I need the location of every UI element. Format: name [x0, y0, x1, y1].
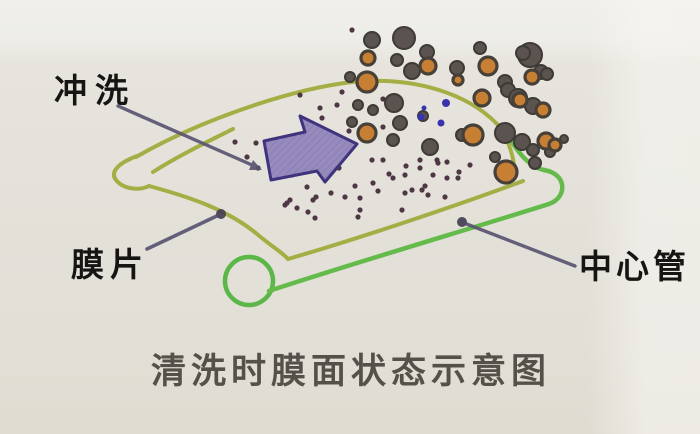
membrane-dirt-dot — [352, 183, 357, 188]
label-flush: 冲洗 — [54, 76, 136, 109]
dirt-blob-orange — [453, 75, 463, 85]
membrane-dirt-dot — [305, 209, 310, 214]
membrane-dirt-dot — [467, 162, 472, 167]
tube-bottom-line — [269, 204, 549, 291]
membrane-dirt-dot — [370, 180, 375, 185]
dirt-blob-dark — [385, 94, 403, 112]
membrane-dirt-dot — [403, 163, 408, 168]
membrane-dirt-dot — [319, 115, 324, 120]
dirt-blob-orange — [361, 51, 375, 65]
blue-dot — [442, 99, 450, 107]
membrane-dirt-dot — [334, 102, 339, 107]
membrane-dirt-dot — [430, 172, 435, 177]
membrane-curl-edge — [114, 156, 149, 189]
dirt-blob-dark — [529, 157, 541, 169]
dirt-blob-dark — [393, 27, 415, 49]
membrane-dirt-dot — [369, 157, 374, 162]
membrane-lower-left-edge — [149, 186, 288, 259]
dirt-blob-dark — [490, 152, 500, 162]
membrane-dirt-dot — [409, 187, 414, 192]
dirt-blob-orange — [495, 161, 517, 183]
membrane-dirt-dot — [317, 105, 322, 110]
membrane-dirt-dot — [380, 124, 385, 129]
membrane-dirt-dot — [375, 188, 380, 193]
dirt-blob-orange — [358, 124, 376, 142]
membrane-dirt-dot — [380, 157, 385, 162]
dirt-blob-dark — [474, 42, 486, 54]
dirt-blob-orange — [525, 70, 539, 84]
dirt-blob-dark — [345, 72, 355, 82]
membrane-dirt-dot — [312, 215, 317, 220]
dirt-blob-dark — [541, 68, 553, 80]
textbook-figure: 冲洗 膜片 中心管 清洗时膜面状态示意图 — [0, 0, 700, 434]
dirt-blob-dark — [516, 46, 530, 60]
flush-arrow-hatch — [264, 116, 357, 182]
label-membrane: 膜片 — [71, 250, 149, 283]
blue-dot — [422, 106, 427, 111]
membrane-dirt-dot — [294, 205, 299, 210]
dirt-blob-dark — [368, 105, 378, 115]
membrane-dirt-dot — [386, 171, 391, 176]
membrane-dirt-dot — [304, 184, 309, 189]
dirt-blob-dark — [353, 100, 363, 110]
membrane-dirt-dot — [402, 172, 407, 177]
membrane-dirt-dot — [339, 89, 344, 94]
membrane-dirt-dot — [346, 128, 351, 133]
membrane-dirt-dot — [399, 207, 404, 212]
dirt-blob-dark — [404, 63, 420, 79]
membrane-dirt-dot — [419, 187, 424, 192]
membrane-dirt-dot — [244, 154, 249, 159]
dirt-blob-dark — [391, 54, 403, 66]
dirt-blob-dark — [393, 116, 407, 130]
membrane-dirt-dot — [444, 175, 449, 180]
dirt-blob-dark — [495, 123, 515, 143]
membrane-dirt-dot — [456, 169, 461, 174]
tube-end-circle — [225, 257, 273, 305]
membrane-dirt-dot — [434, 157, 439, 162]
label-center-tube: 中心管 — [579, 252, 690, 285]
membrane-dirt-dot — [349, 27, 354, 32]
membrane-pointer-line — [147, 214, 221, 249]
dirt-blob-dark — [387, 134, 399, 146]
dirt-blob-orange — [463, 125, 483, 145]
membrane-dirt-dot — [328, 190, 333, 195]
membrane-dirt-dot — [357, 195, 362, 200]
center-tube-pointer-dot — [457, 217, 467, 227]
membrane-dirt-dot — [355, 214, 360, 219]
membrane-dirt-dot — [297, 92, 302, 97]
membrane-dirt-dot — [455, 175, 460, 180]
dirt-blob-dark — [527, 144, 539, 156]
dirt-blob-dark — [422, 139, 438, 155]
membrane-dirt-dot — [444, 159, 449, 164]
dirt-blob-dark — [450, 61, 464, 75]
membrane-dirt-dot — [442, 194, 447, 199]
dirt-blob-orange — [549, 139, 561, 151]
dirt-blob-orange — [474, 90, 490, 106]
membrane-dirt-dot — [417, 165, 422, 170]
tube-right-cap — [544, 170, 562, 204]
membrane-dirt-dot — [357, 207, 362, 212]
membrane-dirt-dot — [282, 202, 287, 207]
membrane-dirt-dot — [310, 197, 315, 202]
membrane-dirt-dot — [402, 190, 407, 195]
membrane-dirt-dot — [417, 157, 422, 162]
dirt-blob-orange — [357, 72, 377, 92]
membrane-dirt-dot — [287, 197, 292, 202]
blue-dot — [418, 114, 425, 121]
membrane-dirt-dot — [390, 175, 395, 180]
membrane-pointer-dot — [216, 209, 226, 219]
figure-caption: 清洗时膜面状态示意图 — [151, 354, 551, 389]
membrane-dirt-dot — [425, 192, 430, 197]
dirt-blob-orange — [479, 57, 497, 75]
membrane-dirt-dot — [342, 194, 347, 199]
membrane-dirt-dot — [253, 140, 258, 145]
center-tube-pointer-line — [464, 223, 575, 266]
dirt-blob-dark — [364, 32, 380, 48]
dirt-blob-orange — [420, 58, 436, 74]
dirt-blob-orange — [513, 93, 527, 107]
dirt-blob-orange — [536, 103, 550, 117]
membrane-dirt-dot — [232, 139, 237, 144]
blue-dot — [438, 120, 445, 127]
dirt-blob-dark — [347, 117, 357, 127]
flush-arrow — [264, 116, 357, 182]
